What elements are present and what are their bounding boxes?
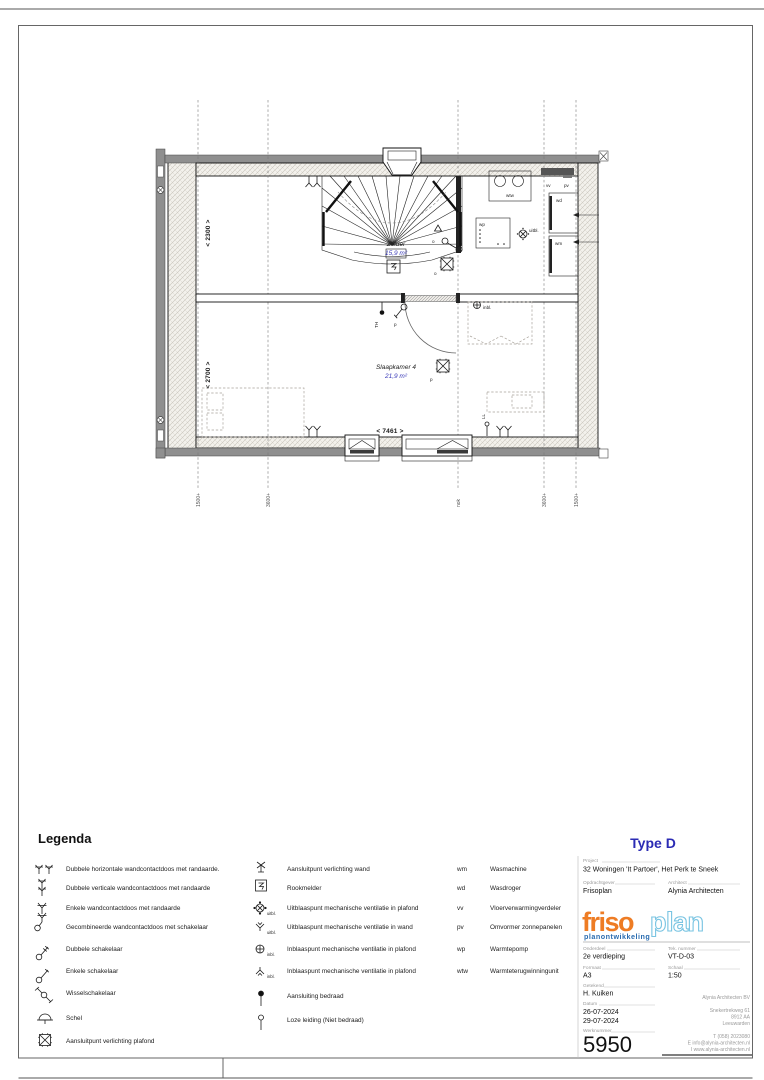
office-city: Leeuwarden [722, 1021, 750, 1027]
legend-item-label: Dubbele horizontale wandcontactdoos met … [66, 866, 220, 873]
legend-abbr: pv [457, 924, 465, 931]
room-zolder: Zolder 15,9 m² o o [385, 225, 462, 276]
legend-item-label: Omvormer zonnepanelen [490, 924, 563, 931]
office-name: Alynia Architecten BV [702, 995, 750, 1001]
architect-value: Alynia Architecten [668, 888, 724, 895]
datum-value-1: 26-07-2024 [583, 1009, 619, 1016]
smoke-detector-legend-icon [256, 880, 267, 891]
roof-window-left [345, 435, 379, 461]
legend-item-label: Inblaaspunt mechanische ventilatie in pl… [287, 946, 416, 953]
thermostat-label: TH [374, 322, 379, 328]
dim-zolder-depth: < 2300 > [205, 219, 212, 246]
room-name: Zolder [386, 241, 406, 248]
frisoplan-logo: friso plan planontwikkeling [582, 907, 750, 942]
inbl-tag: inbl. [267, 952, 275, 957]
office-email: E info@alynia-architecten.nl [688, 1041, 750, 1047]
wall-point-icon [435, 225, 442, 231]
schaal-label: Schaal [668, 965, 683, 971]
dim-slaapkamer-depth: < 2700 > [205, 361, 212, 388]
legend-item-label: Warmtepomp [490, 946, 529, 953]
anchor-mark-icon [157, 187, 164, 194]
legend-item-label: Aansluitpunt verlichting wand [287, 866, 370, 873]
wp-label: wp [479, 222, 485, 227]
left-facade-band [156, 149, 165, 458]
formaat-value: A3 [583, 973, 592, 980]
legend-item-label: Gecombineerde wandcontactdoos met schake… [66, 924, 209, 931]
socket-double-icon [306, 426, 321, 437]
office-website: I www.alynia-architecten.nl [691, 1047, 750, 1053]
legend-item-label: Dubbele schakelaar [66, 946, 123, 953]
ceiling-light-legend-icon [38, 1033, 51, 1046]
skylight [383, 148, 421, 175]
inbl-vent-icon: inbl. [474, 302, 492, 311]
tek-nummer-label: Tek. nummer [668, 946, 696, 952]
legend-item-label: Enkele schakelaar [66, 968, 119, 975]
inbl-label: inbl. [483, 305, 491, 310]
switch-o-label: o [432, 239, 435, 244]
drawing-sheet: 1500+ 3600+ nok 3600+ 1500+ [0, 0, 764, 1080]
legend-item-label: Uitblaaspunt mechanische ventilatie in p… [287, 905, 419, 912]
desk-outline [487, 392, 544, 412]
thermostat: TH [374, 302, 384, 328]
datum-label: Datum [583, 1001, 597, 1007]
getekend-value: H. Kuiken [583, 991, 613, 998]
ceiling-light-icon [440, 257, 454, 271]
wd-label: wd [556, 198, 562, 203]
top-facade-band [165, 155, 600, 163]
legend-item-label: Schel [66, 1015, 82, 1022]
wtw-label: wtw [506, 193, 515, 198]
ceiling-light-icon [436, 359, 450, 373]
anchor-mark-icon [157, 417, 164, 424]
switch-single-icon [36, 969, 49, 983]
office-street: Snekertrekweg 61 [710, 1008, 751, 1014]
logo-subtitle: planontwikkeling [584, 932, 650, 941]
empty-conduit-icon [259, 1015, 264, 1030]
schaal-value: 1:50 [668, 973, 682, 980]
legend-item-label: Uitblaaspunt mechanische ventilatie in w… [287, 924, 413, 931]
legend-abbr: wm [456, 866, 467, 873]
pv-label: pv [564, 183, 570, 188]
gridline-label: 3600+ [542, 493, 548, 507]
gridline-label: 1500+ [574, 493, 580, 507]
legend-item-label: Loze leiding (Niet bedraad) [287, 1017, 364, 1024]
legend-item-label: Rookmelder [287, 885, 322, 892]
uitbl-label: uitbl. [529, 228, 539, 233]
ll-label: LL [481, 413, 486, 419]
datum-value-2: 29-07-2024 [583, 1018, 619, 1025]
legend-item-label: Enkele wandcontactdoos met randaarde [66, 905, 181, 912]
uitbl-tag: uitbl. [267, 911, 276, 916]
switch-p-label: p [394, 322, 397, 327]
gridline-label: 3600+ [266, 493, 272, 507]
loze-leiding-point: LL [481, 413, 489, 436]
opdrachtgever-label: Opdrachtgever [583, 880, 615, 886]
formaat-label: Formaat [583, 965, 602, 971]
drawing-canvas: 1500+ 3600+ nok 3600+ 1500+ [0, 0, 764, 1080]
legend-item-label: Aansluitpunt verlichting plafond [66, 1038, 155, 1045]
room-area: 15,9 m² [385, 250, 408, 257]
getekend-label: Getekend [583, 983, 604, 989]
legend-item-label: Wasmachine [490, 866, 527, 873]
wm-label: wm [555, 241, 562, 246]
bottom-wall [196, 437, 578, 448]
uitbl-tag: uitbl. [267, 930, 276, 935]
right-wall [578, 163, 598, 452]
tek-nummer-value: VT-D-03 [668, 954, 694, 961]
gridline-label: nok [456, 498, 462, 507]
office-phone: T (058) 2023080 [713, 1034, 750, 1040]
project-label: Project [583, 858, 599, 864]
vv-label: vv [546, 183, 551, 188]
type-label: Type D [630, 835, 676, 851]
furniture [202, 302, 544, 437]
door-leaf [405, 296, 456, 302]
werknummer-value: 5950 [583, 1032, 632, 1057]
project-value: 32 Woningen 'It Partoer', Het Perk te Sn… [583, 867, 719, 874]
legend-item-label: Wasdroger [490, 885, 522, 892]
socket-double-icon [497, 426, 512, 437]
smoke-detector-icon [387, 260, 400, 273]
legend: Legenda [35, 831, 563, 1047]
corner-anchor-icon [599, 151, 608, 161]
onderdeel-label: Onderdeel [583, 946, 605, 952]
bottom-facade-band [165, 448, 600, 456]
uitbl-ceiling-icon [254, 902, 266, 914]
switch-double-icon [36, 946, 49, 960]
room-area: 21,9 m² [384, 373, 408, 380]
legend-abbr: vv [457, 905, 464, 912]
legend-abbr: wd [456, 885, 466, 892]
legend-item-label: Inblaaspunt mechanische ventilatie in pl… [287, 968, 416, 975]
onderdeel-value: 2e verdieping [583, 954, 625, 961]
legend-item-label: Aansluiting bedraad [287, 993, 344, 1000]
wall-light-icon [257, 862, 265, 872]
legend-title: Legenda [38, 831, 92, 846]
doorbell-icon [37, 1014, 53, 1024]
wired-connection-icon [259, 991, 264, 1006]
socket-double-horizontal-icon [35, 865, 53, 874]
left-wall [168, 156, 196, 452]
office-postcode: 8912 AA [731, 1015, 751, 1021]
legend-item-label: Dubbele verticale wandcontactdoos met ra… [66, 885, 211, 892]
opdrachtgever-value: Frisoplan [583, 888, 612, 895]
legend-item-label: Vloerverwarmingverdeler [490, 905, 562, 912]
legend-item-label: Wisselschakelaar [66, 990, 117, 997]
heatpump-unit: wp [476, 218, 510, 248]
vv-pv-unit: vv pv [541, 168, 574, 188]
uitbl-vent-icon: uitbl. [517, 228, 539, 240]
socket-double-vertical-icon [38, 879, 46, 896]
socket-single-icon [38, 903, 47, 914]
inbl-ceiling-icon [256, 945, 264, 953]
title-block: Type D Project 32 Woningen 'It Partoer',… [578, 835, 752, 1058]
door-swing-arc [405, 302, 456, 353]
stair-walkline [338, 192, 446, 223]
switch-o-label: o [434, 271, 437, 276]
room-slaapkamer: Slaapkamer 4 21,9 m² p [376, 359, 450, 382]
socket-double-icon [306, 176, 321, 187]
inbl-tag: inbl. [267, 974, 275, 979]
legend-abbr: wp [456, 946, 466, 953]
architect-label: Architect [668, 880, 687, 886]
stair-treads [322, 176, 462, 245]
socket-switch-combo-icon [35, 913, 47, 931]
legend-item-label: Warmteterugwinningunit [490, 968, 559, 975]
logo-plan-text: plan [650, 907, 704, 937]
gridline-label: 1500+ [196, 493, 202, 507]
dim-width: < 7461 > [376, 428, 403, 435]
room-name: Slaapkamer 4 [376, 364, 416, 371]
switch-crossover-icon [35, 987, 53, 1003]
floor-plan: 1500+ 3600+ nok 3600+ 1500+ [156, 100, 608, 507]
uitbl-wall-icon [256, 923, 264, 932]
inbl-wall-icon [256, 967, 264, 976]
switch-p-label: p [430, 377, 433, 382]
legend-abbr: wtw [456, 968, 468, 975]
office-address: Alynia Architecten BV Snekertrekweg 61 8… [662, 995, 752, 1055]
roof-window-right [402, 435, 472, 461]
